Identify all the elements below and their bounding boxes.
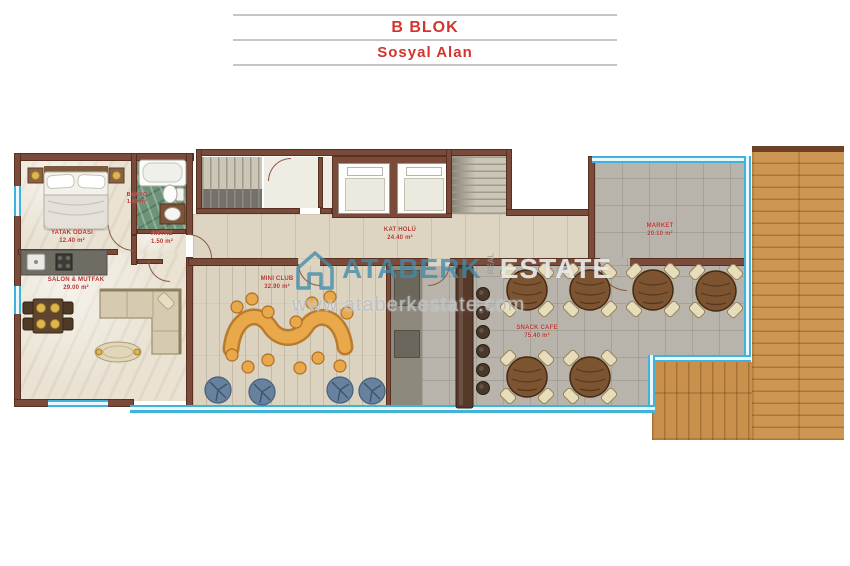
elevator-door [347,167,383,176]
wall [196,149,202,214]
service-cabinet [394,270,420,306]
east-glass-wall [744,156,751,362]
living-kitchen-label: SALON & MUTFAK29.00 m² [31,277,121,293]
wall [186,257,193,407]
living-room-window-south [48,400,108,407]
staircase-right [452,156,506,214]
terrace-deck-lower [652,362,752,440]
market-glass-wall [592,156,744,163]
snack-cafe-label: SNACK CAFE75.40 m² [492,325,582,341]
cafe-glass-step [648,355,751,362]
bedroom-label: YATAK ODASI12.40 m² [27,230,117,246]
elevator-cab [345,178,385,211]
wall [386,263,391,408]
wall [446,149,452,214]
wall [196,149,512,156]
entry-label: ANTRE1.50 m² [117,231,207,247]
living-room-window [14,286,21,314]
south-glass-wall [130,405,655,413]
market-label: MARKET20.10 m² [615,223,705,239]
wall [14,153,194,161]
bathroom-label: BANYO1.20 m² [107,192,167,206]
terrace-deck-right [752,150,844,440]
wall [18,249,118,255]
title-block: B BLOK Sosyal Alan [233,14,617,66]
cafe-floor-lower [422,358,652,408]
wall [320,208,332,214]
hall-label: KAT HOLÜ24.40 m² [355,227,445,243]
page-title: B BLOK [233,16,617,39]
bedroom-window [14,186,21,216]
elevator-door [406,167,442,176]
wall [506,149,512,214]
wall [506,209,594,216]
page-subtitle: Sosyal Alan [233,41,617,64]
wall [588,156,595,263]
wall [318,157,323,208]
elevator-2 [397,163,449,214]
elevator-1 [338,163,390,214]
market-floor [595,163,744,260]
service-cabinet [394,330,420,358]
wall [186,153,193,235]
elevator-cab [404,178,444,211]
wall [188,258,750,266]
cafe-floor-upper [422,263,750,358]
title-rule-bottom [233,64,617,66]
staircase-left-upper [202,157,262,189]
floor-plan-page: B BLOK Sosyal Alan [0,0,850,566]
mini-club-label: MINI CLUB32.90 m² [232,276,322,292]
wall [196,208,300,214]
deck-edge [752,146,844,152]
